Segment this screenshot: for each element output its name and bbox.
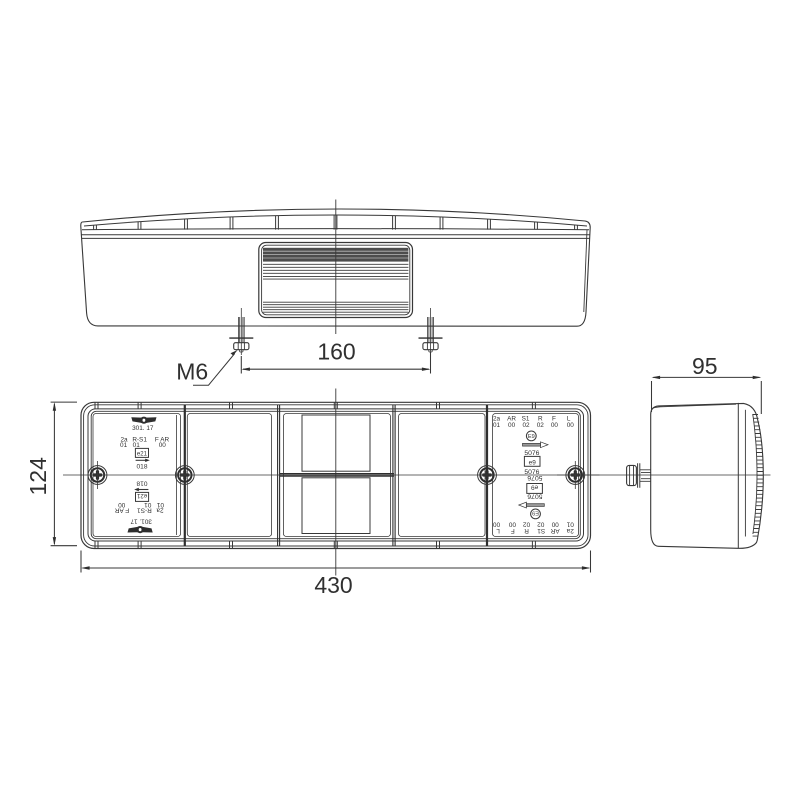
svg-text:95: 95 (692, 353, 718, 379)
svg-text:160: 160 (317, 339, 355, 365)
svg-text:01: 01 (566, 521, 574, 528)
svg-text:00: 00 (551, 422, 559, 429)
svg-text:00: 00 (508, 422, 516, 429)
svg-text:e21: e21 (137, 452, 148, 458)
svg-text:5076: 5076 (527, 474, 542, 481)
svg-text:M6: M6 (176, 358, 208, 384)
svg-text:01: 01 (133, 442, 141, 449)
svg-text:00: 00 (551, 521, 559, 528)
svg-text:301. 17: 301. 17 (130, 518, 152, 525)
svg-text:01: 01 (156, 501, 164, 508)
svg-text:e9: e9 (531, 484, 539, 491)
svg-text:E9: E9 (532, 510, 539, 516)
svg-text:430: 430 (314, 572, 352, 598)
svg-text:01: 01 (120, 442, 128, 449)
svg-text:018: 018 (136, 464, 147, 471)
svg-text:02: 02 (522, 422, 530, 429)
svg-text:02: 02 (537, 422, 545, 429)
svg-text:02: 02 (523, 521, 531, 528)
svg-text:124: 124 (25, 457, 51, 496)
svg-text:e9: e9 (529, 459, 537, 466)
svg-text:00: 00 (567, 422, 575, 429)
svg-text:e21: e21 (136, 492, 147, 498)
svg-text:00: 00 (159, 442, 167, 449)
svg-text:00: 00 (118, 501, 126, 508)
svg-text:301. 17: 301. 17 (132, 425, 154, 432)
svg-text:00: 00 (493, 521, 501, 528)
svg-text:01: 01 (493, 422, 501, 429)
svg-text:018: 018 (136, 479, 147, 486)
svg-text:02: 02 (537, 521, 545, 528)
svg-text:01: 01 (144, 501, 152, 508)
svg-text:00: 00 (508, 521, 516, 528)
svg-text:E9: E9 (528, 434, 535, 440)
